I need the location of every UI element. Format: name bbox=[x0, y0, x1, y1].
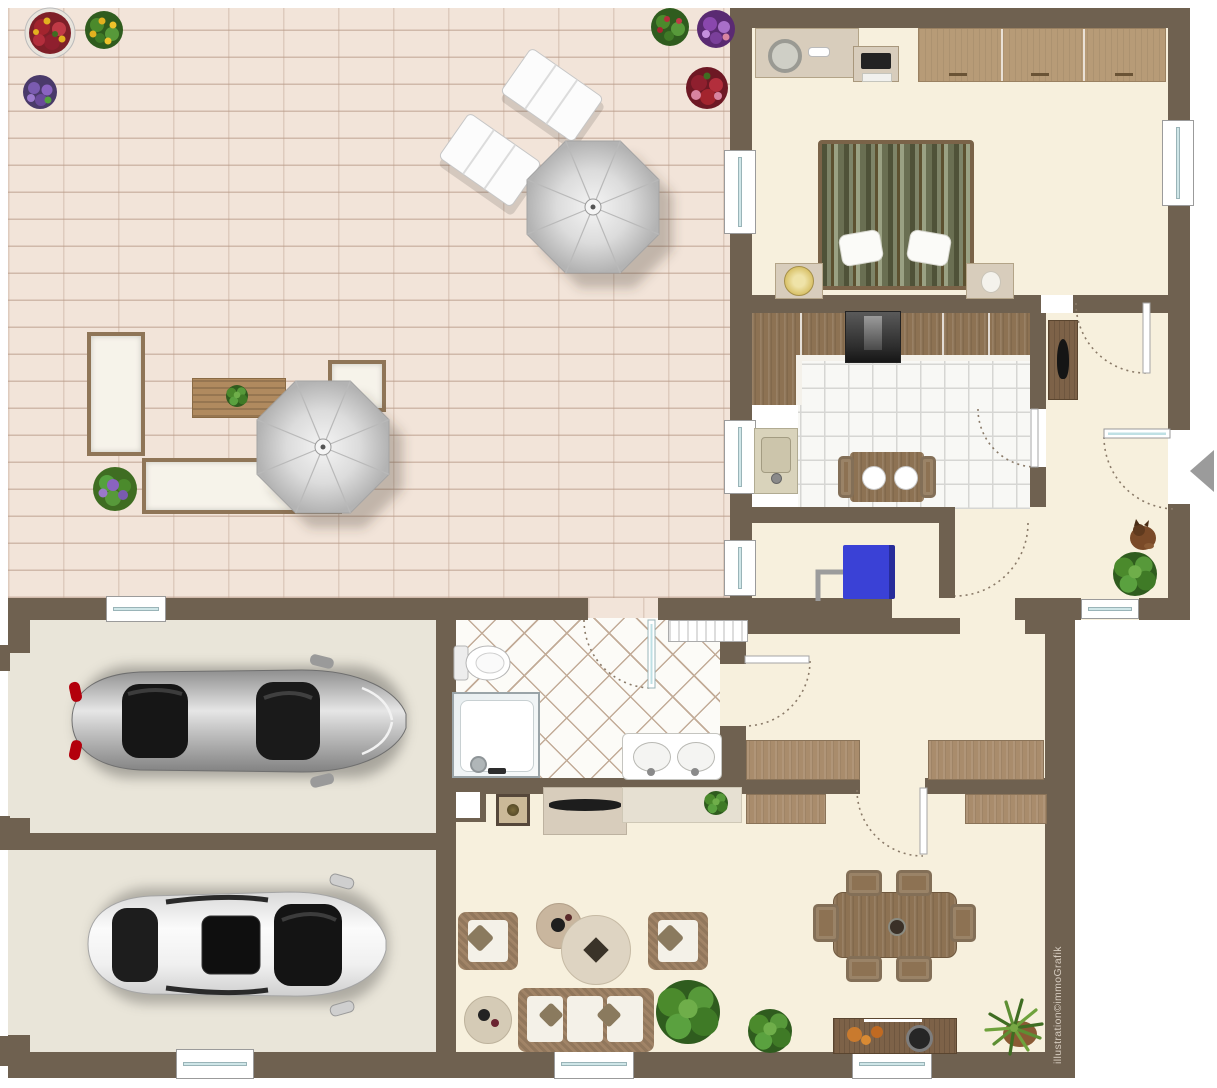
wall-kitchen-bottom bbox=[730, 507, 955, 523]
garage2-window bbox=[176, 1049, 254, 1079]
dresser-items bbox=[808, 47, 830, 57]
dining-chair bbox=[896, 956, 932, 982]
blue-cabinet bbox=[843, 545, 895, 599]
wall-patio-bottom-c bbox=[456, 598, 588, 620]
wall-right-mid bbox=[1168, 502, 1190, 620]
sink-bowl bbox=[761, 437, 791, 473]
wardrobe-handles bbox=[1031, 73, 1049, 76]
wall-hall-bottom-b bbox=[1139, 598, 1168, 620]
shower-drain bbox=[470, 756, 487, 773]
sideboard-highlight bbox=[864, 1019, 922, 1022]
tv-icon bbox=[861, 53, 891, 69]
wall-kitchen-right-a bbox=[1030, 313, 1046, 409]
counter-divider bbox=[800, 313, 802, 355]
desk-right bbox=[928, 740, 1044, 780]
wardrobe-handles bbox=[949, 73, 967, 76]
window-glass bbox=[561, 1062, 627, 1066]
kitchen-table bbox=[850, 452, 924, 502]
dining-chair bbox=[950, 904, 976, 942]
wall-stub-out-2 bbox=[0, 816, 10, 850]
kitchen-sink-unit bbox=[754, 428, 798, 494]
double-sink-vanity bbox=[622, 733, 722, 780]
dining-sideboard bbox=[833, 1018, 957, 1054]
window-glass bbox=[1176, 127, 1180, 199]
dining-table bbox=[833, 892, 957, 958]
patio-paving bbox=[8, 8, 735, 598]
bedroom-wardrobe bbox=[918, 28, 1166, 82]
wall-bedroom-bottom-right bbox=[1073, 295, 1190, 313]
dining-chair bbox=[846, 870, 882, 896]
wall-bottom-b bbox=[254, 1052, 554, 1078]
window-glass bbox=[738, 547, 742, 589]
wall-patio-bottom-d bbox=[658, 598, 748, 620]
patio-door-threshold bbox=[588, 598, 658, 620]
stove-with-hood bbox=[845, 311, 901, 363]
wall-patio-bottom-b bbox=[166, 598, 436, 620]
wall-bath-right-b bbox=[720, 726, 746, 778]
hood-vent bbox=[864, 316, 882, 350]
hall-patio-window bbox=[724, 540, 756, 596]
fruit-bowl bbox=[861, 1035, 871, 1045]
bedroom-door-opening bbox=[1041, 295, 1073, 313]
bedroom-patio-window bbox=[724, 150, 756, 234]
wardrobe-divider bbox=[1001, 29, 1003, 81]
living-window bbox=[554, 1049, 634, 1079]
bedroom-tv-stand bbox=[853, 46, 899, 82]
wall-study-divider-b bbox=[925, 778, 1045, 794]
dining-centerpiece bbox=[888, 918, 906, 936]
bedroom-right-window bbox=[1162, 120, 1194, 206]
armchair-2 bbox=[648, 912, 708, 970]
wall-right-upper bbox=[1168, 8, 1190, 432]
garage1-window bbox=[106, 596, 166, 622]
coffee-table-large bbox=[561, 915, 631, 985]
plate bbox=[894, 466, 918, 490]
square-stool bbox=[496, 794, 530, 826]
tv-lowboard bbox=[543, 787, 627, 835]
counter-divider bbox=[988, 313, 990, 355]
cabinet-ornament bbox=[1057, 339, 1069, 379]
wall-study-divider-a bbox=[746, 778, 860, 794]
wall-kitchen-right-b bbox=[1030, 467, 1046, 507]
tv-base bbox=[862, 73, 892, 82]
counter-divider bbox=[942, 313, 944, 355]
radiator-shelf bbox=[668, 620, 748, 642]
kitchen-counter-left-run bbox=[752, 313, 796, 405]
dark-bowl bbox=[906, 1025, 933, 1052]
wall-top bbox=[730, 8, 1190, 28]
sideboard-long bbox=[622, 787, 742, 823]
centerpiece bbox=[583, 937, 608, 962]
dining-chair bbox=[846, 956, 882, 982]
kitchen-chair-left bbox=[838, 456, 854, 498]
sideboard-right bbox=[965, 794, 1047, 824]
sofa-cushion bbox=[567, 996, 603, 1042]
desk-left bbox=[746, 740, 860, 780]
hall-tall-cabinet bbox=[1048, 320, 1078, 400]
window-glass bbox=[859, 1062, 925, 1066]
armchair-1 bbox=[458, 912, 518, 970]
wall-study-top-a bbox=[746, 618, 960, 634]
bed-pillow-left bbox=[838, 229, 885, 268]
garden-bench-right bbox=[328, 360, 386, 412]
wall-bottom-a bbox=[8, 1052, 176, 1078]
floor-plan: illustration©immoGrafik bbox=[0, 0, 1217, 1088]
table-items bbox=[478, 1009, 490, 1021]
wall-stub-out-1 bbox=[0, 645, 10, 671]
sideboard-left bbox=[746, 794, 826, 824]
bedroom-dresser bbox=[755, 28, 859, 78]
dresser-bowl bbox=[768, 39, 802, 73]
wall-left-a bbox=[8, 598, 30, 653]
wall-patio-separator bbox=[730, 8, 752, 620]
wall-lower-hall-bottom bbox=[730, 598, 892, 620]
table-items bbox=[565, 914, 572, 921]
deco-shell bbox=[981, 271, 1001, 293]
watermark-credit: illustration©immoGrafik bbox=[1052, 946, 1064, 1064]
double-bed bbox=[818, 140, 974, 290]
wardrobe-handles bbox=[1115, 73, 1133, 76]
wall-stub-below-kitchen bbox=[939, 507, 955, 598]
stool-center bbox=[507, 804, 519, 816]
nightstand-right bbox=[966, 263, 1014, 299]
fruit-bowl bbox=[847, 1027, 862, 1042]
kitchen-patio-window bbox=[724, 420, 756, 494]
fruit-bowl bbox=[871, 1026, 883, 1038]
sofa bbox=[518, 988, 654, 1052]
kitchen-chair-right bbox=[920, 456, 936, 498]
dining-chair bbox=[896, 870, 932, 896]
table-items bbox=[551, 918, 565, 932]
table-items bbox=[491, 1019, 499, 1027]
window-glass bbox=[113, 607, 159, 611]
bedside-lamp bbox=[784, 266, 814, 296]
tap bbox=[647, 768, 655, 776]
hallway-bottom-window bbox=[1081, 599, 1139, 619]
wardrobe-divider bbox=[1083, 29, 1085, 81]
wall-garage-divider bbox=[8, 833, 436, 850]
window-glass bbox=[183, 1062, 247, 1066]
kitchen-door-opening bbox=[1030, 409, 1046, 467]
garden-bench-left bbox=[87, 332, 145, 456]
tap bbox=[691, 768, 699, 776]
window-glass bbox=[738, 427, 742, 487]
wall-garage-right bbox=[436, 598, 456, 1078]
kitchen-counter-edge-left bbox=[796, 355, 802, 405]
wall-bottom-c bbox=[634, 1052, 852, 1078]
sink-faucet bbox=[771, 473, 782, 484]
entrance-arrow-icon bbox=[1190, 450, 1214, 492]
garden-table bbox=[192, 378, 286, 418]
garden-bench-bottom bbox=[142, 458, 342, 514]
chimney-niche bbox=[456, 792, 480, 818]
window-glass bbox=[738, 157, 742, 227]
window-glass bbox=[1088, 607, 1132, 611]
nightstand-left bbox=[775, 263, 823, 299]
side-table bbox=[464, 996, 512, 1044]
flat-tv bbox=[549, 799, 621, 811]
entry-door-opening bbox=[1168, 430, 1190, 504]
shower bbox=[452, 692, 540, 778]
dining-chair bbox=[813, 904, 839, 942]
plate bbox=[862, 466, 886, 490]
bed-pillow-right bbox=[906, 229, 953, 268]
shower-fixture bbox=[488, 768, 506, 774]
